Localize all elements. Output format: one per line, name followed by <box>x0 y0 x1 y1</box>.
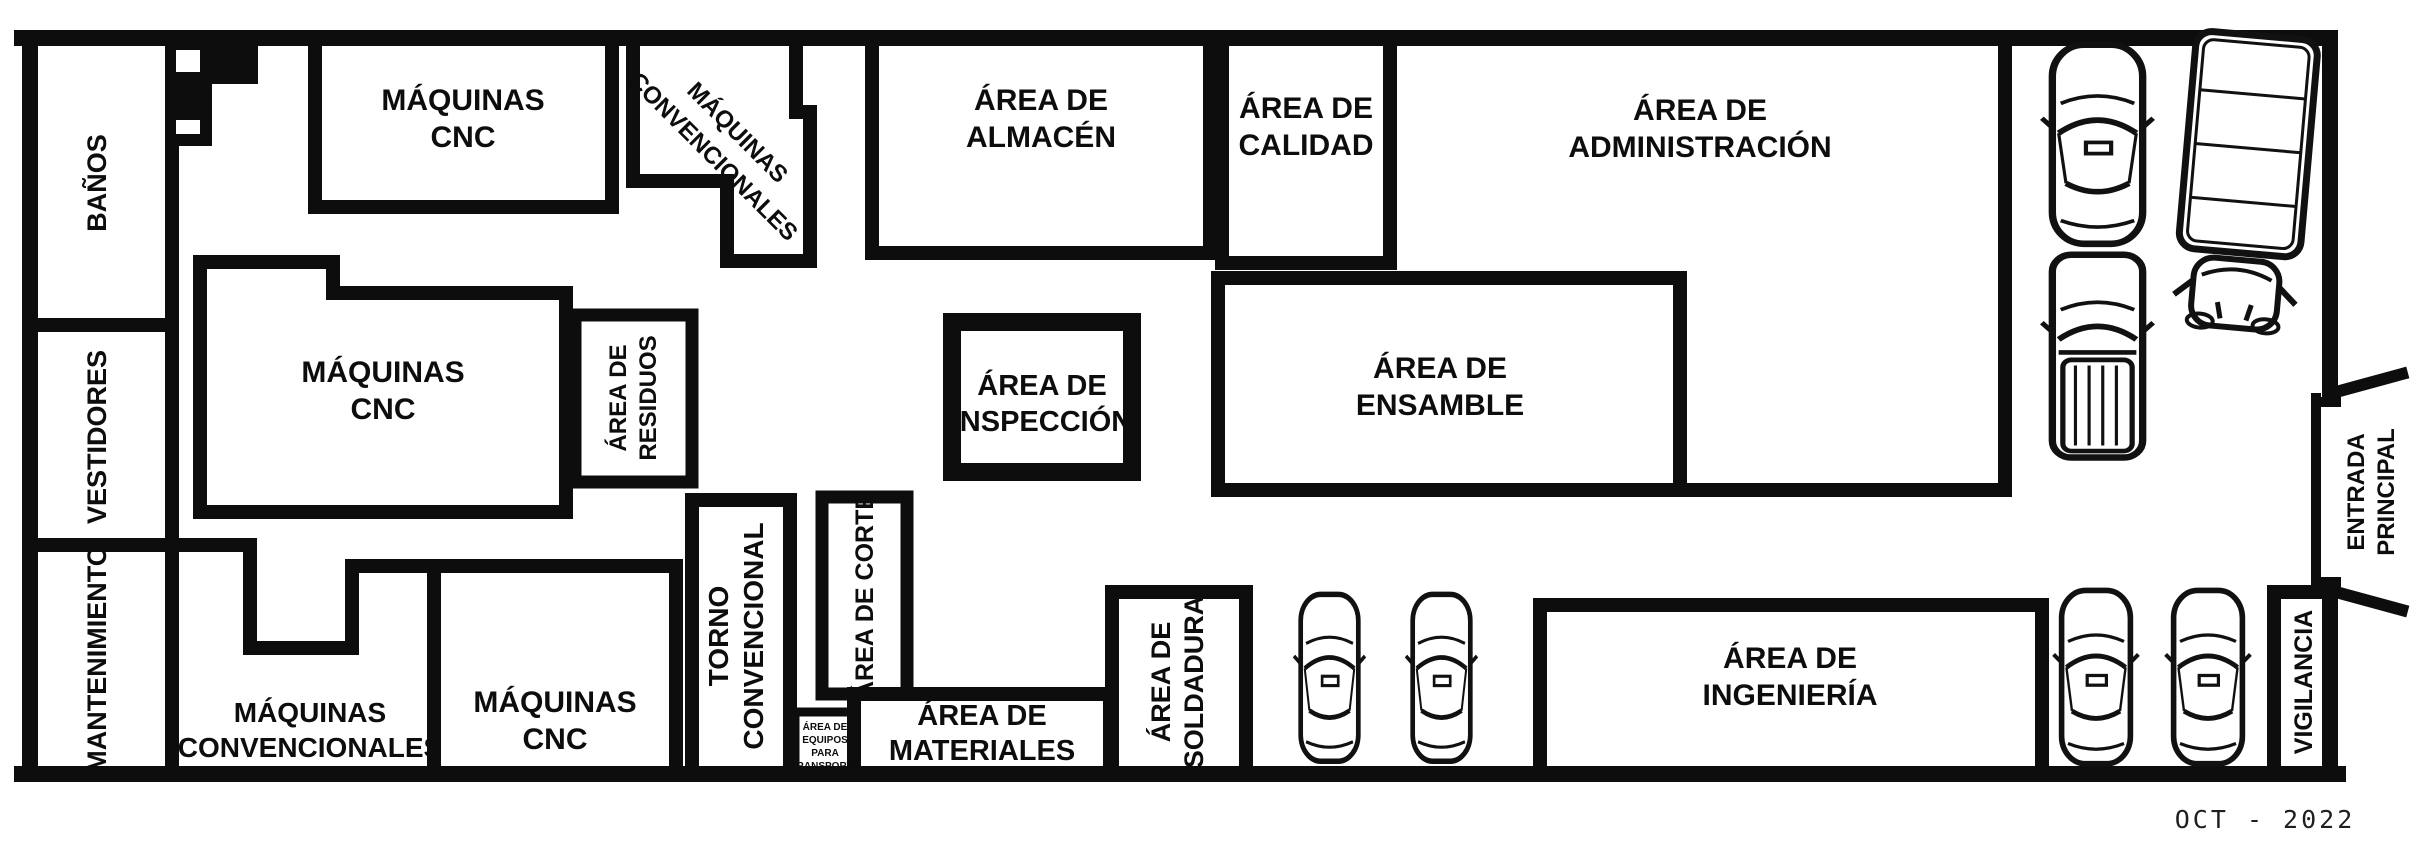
room-label-vestidores: VESTIDORES <box>82 350 112 524</box>
car-top-view-icon <box>2054 590 2139 763</box>
inspeccion-line2: INSPECCIÓN <box>952 404 1132 438</box>
inspeccion-line1: ÁREA DE <box>977 368 1106 402</box>
cnc-top-line1: MÁQUINAS <box>381 83 544 117</box>
residuos-line2: RESIDUOS <box>635 335 662 460</box>
room-label-maquinas-cnc-top: MÁQUINAS CNC <box>381 83 544 154</box>
room-label-vigilancia: VIGILANCIA <box>2290 610 2318 754</box>
conv-bottom-line1: MÁQUINAS <box>234 697 386 728</box>
parking-top-right <box>2042 30 2319 457</box>
pickup-truck-top-view-icon <box>2042 255 2153 458</box>
calidad-line2: CALIDAD <box>1239 129 1374 162</box>
date-label: OCT - 2022 <box>2175 805 2356 834</box>
ensamble-line1: ÁREA DE <box>1373 351 1507 385</box>
room-label-area-almacen: ÁREA DE ALMACÉN <box>966 83 1116 154</box>
room-label-area-inspeccion: ÁREA DE INSPECCIÓN <box>952 368 1132 438</box>
equipos-line2: EQUIPOS <box>802 735 848 746</box>
room-label-area-ensamble: ÁREA DE ENSAMBLE <box>1356 351 1524 422</box>
room-label-maquinas-cnc-mid: MÁQUINAS CNC <box>301 355 464 426</box>
box-truck-top-view-icon <box>2171 30 2318 336</box>
room-label-area-corte: ÁREA DE CORTE <box>850 493 879 699</box>
almacen-line1: ÁREA DE <box>974 83 1108 117</box>
ensamble-line2: ENSAMBLE <box>1356 389 1524 422</box>
torno-line1: TORNO <box>703 586 734 687</box>
car-top-view-icon <box>1406 594 1477 761</box>
room-label-torno-convencional: TORNO CONVENCIONAL <box>703 522 769 749</box>
materiales-line1: ÁREA DE <box>917 698 1046 732</box>
equipos-line1: ÁREA DE <box>803 720 848 733</box>
cnc-mid-line2: CNC <box>351 393 416 426</box>
administracion-line1: ÁREA DE <box>1633 93 1767 127</box>
equipos-line3: PARA <box>811 748 839 759</box>
vigilancia-label: VIGILANCIA <box>2290 610 2318 754</box>
cnc-mid-line1: MÁQUINAS <box>301 355 464 389</box>
cnc-top-line2: CNC <box>431 121 496 154</box>
materiales-line2: MATERIALES <box>889 735 1075 767</box>
stairs-notch <box>176 50 200 72</box>
banos-label: BAÑOS <box>81 134 112 232</box>
conv-bottom-line2: CONVENCIONALES <box>178 732 442 763</box>
entrada-line2: PRINCIPAL <box>2373 428 2400 556</box>
soldadura-line1: ÁREA DE <box>1145 622 1176 743</box>
room-label-mantenimiento: MANTENIMIENTO <box>82 545 112 773</box>
soldadura-line2: SOLDADURA <box>1179 596 1209 769</box>
room-label-area-soldadura: ÁREA DE SOLDADURA <box>1145 596 1209 769</box>
room-label-maquinas-cnc-bottom: MÁQUINAS CNC <box>473 685 636 756</box>
vestidores-label: VESTIDORES <box>82 350 112 524</box>
room-label-banos: BAÑOS <box>81 134 112 232</box>
administracion-line2: ADMINISTRACIÓN <box>1568 130 1831 164</box>
equipos-line4: TRANSPORTE <box>791 761 860 772</box>
stairs-icon <box>172 40 258 146</box>
label-entrada-principal: ENTRADA PRINCIPAL <box>2343 428 2400 556</box>
residuos-line1: ÁREA DE <box>604 344 632 451</box>
torno-line2: CONVENCIONAL <box>738 522 769 749</box>
factory-floor-plan: BAÑOS VESTIDORES MANTENIMIENTO MÁQUINAS … <box>0 0 2418 862</box>
room-label-area-residuos: ÁREA DE RESIDUOS <box>604 335 662 460</box>
cnc-bottom-line2: CNC <box>523 723 588 756</box>
room-label-area-calidad: ÁREA DE CALIDAD <box>1239 91 1374 162</box>
cnc-bottom-line1: MÁQUINAS <box>473 685 636 719</box>
entrada-line1: ENTRADA <box>2343 433 2370 550</box>
car-top-view-icon <box>1294 594 1365 761</box>
ingenieria-line2: INGENIERÍA <box>1702 678 1877 712</box>
room-area-residuos-walls <box>575 315 692 482</box>
suv-top-view-icon <box>2042 45 2153 244</box>
room-label-maquinas-convencionales-bottom: MÁQUINAS CONVENCIONALES <box>178 697 442 763</box>
room-label-area-ingenieria: ÁREA DE INGENIERÍA <box>1702 641 1877 712</box>
room-label-area-materiales: ÁREA DE MATERIALES <box>889 698 1075 767</box>
room-label-area-administracion: ÁREA DE ADMINISTRACIÓN <box>1568 93 1831 164</box>
car-top-view-icon <box>2166 590 2251 763</box>
parking-bottom-row <box>1294 590 2250 763</box>
calidad-line1: ÁREA DE <box>1239 91 1373 125</box>
almacen-line2: ALMACÉN <box>966 120 1116 154</box>
corte-label: ÁREA DE CORTE <box>850 493 879 699</box>
ingenieria-line1: ÁREA DE <box>1723 641 1857 675</box>
stairs-notch <box>176 120 200 134</box>
floor-plan-svg: BAÑOS VESTIDORES MANTENIMIENTO MÁQUINAS … <box>0 0 2418 862</box>
mantenimiento-label: MANTENIMIENTO <box>82 545 112 773</box>
